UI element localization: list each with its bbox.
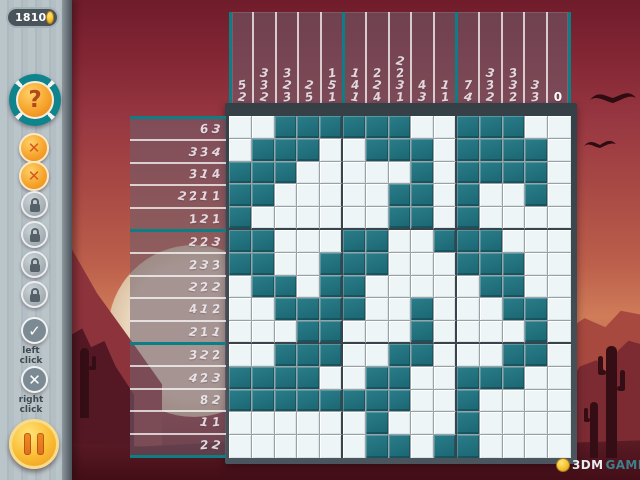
- grid-cell[interactable]: [411, 276, 434, 299]
- grid-cell[interactable]: [457, 253, 480, 276]
- grid-cell[interactable]: [389, 253, 412, 276]
- grid-cell[interactable]: [457, 207, 480, 230]
- grid-cell[interactable]: [389, 298, 412, 321]
- grid-cell[interactable]: [411, 390, 434, 413]
- grid-cell[interactable]: [389, 321, 412, 344]
- grid-cell[interactable]: [457, 116, 480, 139]
- grid-cell[interactable]: [366, 230, 389, 253]
- undo-mistake-button-2[interactable]: ✕: [19, 161, 49, 191]
- grid-cell[interactable]: [275, 412, 298, 435]
- grid-cell[interactable]: [525, 344, 548, 367]
- grid-cell[interactable]: [275, 184, 298, 207]
- left-click-label-line1: left: [0, 346, 62, 356]
- grid-cell[interactable]: [411, 162, 434, 185]
- grid-cell[interactable]: [389, 139, 412, 162]
- grid-cell[interactable]: [480, 390, 503, 413]
- grid-cell[interactable]: [343, 162, 366, 185]
- grid-cell[interactable]: [366, 390, 389, 413]
- pause-button[interactable]: [9, 419, 59, 469]
- grid-cell[interactable]: [457, 367, 480, 390]
- grid-cell[interactable]: [320, 321, 343, 344]
- grid-cell[interactable]: [343, 207, 366, 230]
- grid-cell[interactable]: [389, 230, 412, 253]
- grid-cell[interactable]: [252, 162, 275, 185]
- row-clue: 211: [130, 322, 226, 345]
- grid-cell[interactable]: [320, 116, 343, 139]
- grid-cell[interactable]: [503, 298, 526, 321]
- grid-cell[interactable]: [320, 162, 343, 185]
- grid-cell[interactable]: [548, 139, 571, 162]
- grid-cell[interactable]: [457, 321, 480, 344]
- clue-number: 1: [200, 326, 209, 339]
- grid-cell[interactable]: [525, 139, 548, 162]
- grid-cell[interactable]: [411, 412, 434, 435]
- grid-cell[interactable]: [525, 390, 548, 413]
- grid-cell[interactable]: [275, 116, 298, 139]
- grid-cell[interactable]: [411, 139, 434, 162]
- grid-cell[interactable]: [297, 321, 320, 344]
- grid-cell[interactable]: [275, 253, 298, 276]
- question-icon: ?: [16, 81, 54, 119]
- row-clue: 2211: [130, 186, 226, 208]
- grid-cell[interactable]: [480, 435, 503, 458]
- grid-cell[interactable]: [252, 298, 275, 321]
- grid-cell[interactable]: [457, 298, 480, 321]
- grid-cell[interactable]: [320, 139, 343, 162]
- column-clue: 11: [435, 12, 458, 105]
- grid-cell[interactable]: [434, 207, 457, 230]
- grid-cell[interactable]: [275, 230, 298, 253]
- sidebar-edge: [62, 0, 72, 480]
- fill-mode-indicator[interactable]: ✓: [21, 317, 48, 344]
- grid-cell[interactable]: [252, 253, 275, 276]
- grid-cell[interactable]: [503, 344, 526, 367]
- grid-cell[interactable]: [389, 390, 412, 413]
- row-clue: 82: [130, 390, 226, 412]
- grid-cell[interactable]: [503, 276, 526, 299]
- grid-cell[interactable]: [297, 230, 320, 253]
- clue-number: 1: [188, 212, 198, 225]
- grid-cell[interactable]: [434, 412, 457, 435]
- grid-cell[interactable]: [480, 230, 503, 253]
- grid-cell[interactable]: [252, 276, 275, 299]
- grid-cell[interactable]: [480, 116, 503, 139]
- locked-slot-button-4[interactable]: [21, 281, 48, 308]
- clue-number: 1: [211, 190, 220, 203]
- grid-cell[interactable]: [297, 184, 320, 207]
- watermark-text-game: GAME: [605, 458, 640, 472]
- row-clue: 233: [130, 254, 226, 276]
- grid-cell[interactable]: [297, 298, 320, 321]
- grid-cell[interactable]: [366, 321, 389, 344]
- clue-number: 2: [211, 394, 221, 407]
- grid-cell[interactable]: [297, 139, 320, 162]
- grid-cell[interactable]: [434, 298, 457, 321]
- clue-number: 6: [199, 123, 209, 136]
- hint-button[interactable]: ?: [9, 74, 61, 126]
- grid-cell[interactable]: [229, 253, 252, 276]
- x-icon: ✕: [28, 139, 41, 157]
- grid-cell[interactable]: [434, 184, 457, 207]
- clue-number: 4: [373, 90, 383, 103]
- grid-cell[interactable]: [366, 162, 389, 185]
- grid-cell[interactable]: [525, 253, 548, 276]
- grid-cell[interactable]: [548, 435, 571, 458]
- grid-cell[interactable]: [480, 184, 503, 207]
- grid-cell[interactable]: [434, 230, 457, 253]
- clue-number: 2: [177, 190, 187, 203]
- bird-icon: [583, 136, 617, 156]
- grid-cell[interactable]: [229, 276, 252, 299]
- grid-cell[interactable]: [548, 344, 571, 367]
- grid-cell[interactable]: [343, 435, 366, 458]
- locked-slot-button-2[interactable]: [21, 221, 48, 248]
- left-click-label-line2: click: [0, 356, 62, 366]
- clue-number: 3: [188, 168, 197, 181]
- clue-number: 4: [211, 145, 221, 158]
- grid-cell[interactable]: [229, 321, 252, 344]
- grid-cell[interactable]: [343, 276, 366, 299]
- grid-cell[interactable]: [389, 435, 412, 458]
- grid-cell[interactable]: [297, 435, 320, 458]
- grid-cell[interactable]: [229, 139, 252, 162]
- grid-cell[interactable]: [525, 321, 548, 344]
- grid-cell[interactable]: [503, 184, 526, 207]
- grid-cell[interactable]: [503, 162, 526, 185]
- clue-number: 3: [418, 91, 428, 104]
- clue-number: 3: [211, 123, 221, 136]
- grid-cell[interactable]: [275, 139, 298, 162]
- grid-cell[interactable]: [480, 253, 503, 276]
- column-clue: 332: [480, 12, 502, 105]
- row-clue: 22: [130, 435, 226, 455]
- column-clue: 2231: [390, 12, 412, 105]
- grid-cell[interactable]: [389, 207, 412, 230]
- grid-cell[interactable]: [343, 139, 366, 162]
- grid-cell[interactable]: [503, 390, 526, 413]
- grid-cell[interactable]: [320, 367, 343, 390]
- grid-cell[interactable]: [366, 412, 389, 435]
- grid-cell[interactable]: [503, 139, 526, 162]
- lock-icon: [29, 258, 41, 272]
- grid-cell[interactable]: [320, 253, 343, 276]
- right-click-label-line1: right: [0, 395, 62, 405]
- column-clue: 332: [254, 12, 276, 105]
- grid-cell[interactable]: [411, 298, 434, 321]
- grid-cell[interactable]: [389, 367, 412, 390]
- cactus-icon: [590, 402, 598, 458]
- grid-cell[interactable]: [343, 184, 366, 207]
- grid-cell[interactable]: [457, 435, 480, 458]
- grid-cell[interactable]: [480, 321, 503, 344]
- watermark-logo-icon: [556, 458, 570, 472]
- grid-cell[interactable]: [320, 230, 343, 253]
- grid-cell[interactable]: [434, 390, 457, 413]
- grid-cell[interactable]: [229, 390, 252, 413]
- grid-cell[interactable]: [320, 184, 343, 207]
- coin-count-value: 1810: [15, 11, 46, 24]
- grid-cell[interactable]: [480, 367, 503, 390]
- grid-cell[interactable]: [275, 321, 298, 344]
- grid-cell[interactable]: [297, 367, 320, 390]
- grid-cell[interactable]: [411, 253, 434, 276]
- grid-cell[interactable]: [343, 253, 366, 276]
- grid-cell[interactable]: [366, 253, 389, 276]
- grid-cell[interactable]: [297, 116, 320, 139]
- row-clue: 223: [130, 232, 226, 254]
- grid-cell[interactable]: [457, 139, 480, 162]
- grid-cell[interactable]: [252, 116, 275, 139]
- grid-cell[interactable]: [548, 184, 571, 207]
- clue-number: 4: [463, 90, 473, 103]
- grid-cell[interactable]: [229, 207, 252, 230]
- grid-cell[interactable]: [503, 253, 526, 276]
- clue-number: 8: [199, 393, 209, 406]
- grid-cell[interactable]: [503, 412, 526, 435]
- grid-cell[interactable]: [297, 162, 320, 185]
- grid-cell[interactable]: [525, 298, 548, 321]
- grid-cell[interactable]: [503, 321, 526, 344]
- grid-cell[interactable]: [434, 276, 457, 299]
- grid-cell[interactable]: [525, 162, 548, 185]
- grid-cell[interactable]: [548, 367, 571, 390]
- grid-cell[interactable]: [389, 276, 412, 299]
- grid-cell[interactable]: [434, 162, 457, 185]
- grid-cell[interactable]: [252, 207, 275, 230]
- grid-cell[interactable]: [457, 276, 480, 299]
- grid-cell[interactable]: [503, 116, 526, 139]
- grid-cell[interactable]: [366, 184, 389, 207]
- grid-cell[interactable]: [525, 276, 548, 299]
- locked-slot-button-1[interactable]: [21, 191, 48, 218]
- x-icon: ✕: [28, 371, 41, 389]
- grid-cell[interactable]: [411, 344, 434, 367]
- grid-cell[interactable]: [480, 412, 503, 435]
- grid-cell[interactable]: [389, 162, 412, 185]
- grid-cell[interactable]: [525, 116, 548, 139]
- clue-number: 1: [350, 90, 360, 103]
- right-click-label-line2: click: [0, 405, 62, 415]
- grid-cell[interactable]: [320, 207, 343, 230]
- grid-cell[interactable]: [480, 344, 503, 367]
- column-clue: 141: [345, 12, 367, 105]
- column-clue: 323: [277, 12, 299, 105]
- grid-cell[interactable]: [389, 116, 412, 139]
- grid-cell[interactable]: [229, 412, 252, 435]
- grid-cell[interactable]: [434, 344, 457, 367]
- clue-number: 1: [440, 91, 449, 104]
- grid-cell[interactable]: [411, 116, 434, 139]
- grid-cell[interactable]: [320, 344, 343, 367]
- grid-cell[interactable]: [548, 116, 571, 139]
- clue-number: 2: [259, 90, 269, 103]
- watermark-text-3dm: 3DM: [572, 458, 603, 472]
- grid-cell[interactable]: [343, 344, 366, 367]
- grid-cell[interactable]: [252, 230, 275, 253]
- grid-cell[interactable]: [434, 367, 457, 390]
- grid-cell[interactable]: [548, 276, 571, 299]
- grid-cell[interactable]: [297, 276, 320, 299]
- grid-cell[interactable]: [343, 321, 366, 344]
- grid-cell[interactable]: [366, 367, 389, 390]
- grid-cell[interactable]: [366, 207, 389, 230]
- row-clue: 412: [130, 299, 226, 321]
- grid-cell[interactable]: [548, 412, 571, 435]
- locked-slot-button-3[interactable]: [21, 251, 48, 278]
- grid-cell[interactable]: [411, 435, 434, 458]
- grid-cell[interactable]: [343, 367, 366, 390]
- grid-cell[interactable]: [548, 162, 571, 185]
- grid-cell[interactable]: [480, 207, 503, 230]
- clue-number: 2: [486, 91, 496, 104]
- grid-cell[interactable]: [480, 298, 503, 321]
- grid-cell[interactable]: [343, 298, 366, 321]
- row-clue: 121: [130, 209, 226, 232]
- grid-cell[interactable]: [297, 412, 320, 435]
- grid-cell[interactable]: [275, 162, 298, 185]
- grid-cell[interactable]: [252, 412, 275, 435]
- grid-cell[interactable]: [434, 116, 457, 139]
- grid-cell[interactable]: [548, 298, 571, 321]
- grid-cell[interactable]: [411, 207, 434, 230]
- grid-cell[interactable]: [525, 412, 548, 435]
- grid-cell[interactable]: [366, 344, 389, 367]
- grid-cell[interactable]: [434, 253, 457, 276]
- grid-cell[interactable]: [252, 390, 275, 413]
- grid-cell[interactable]: [275, 207, 298, 230]
- grid-cell[interactable]: [503, 435, 526, 458]
- grid-cell[interactable]: [389, 184, 412, 207]
- clue-number: 3: [282, 90, 292, 103]
- clue-number: 2: [211, 349, 221, 362]
- grid-cell[interactable]: [457, 390, 480, 413]
- grid-cell[interactable]: [434, 321, 457, 344]
- grid-cell[interactable]: [389, 412, 412, 435]
- grid-cell[interactable]: [229, 116, 252, 139]
- grid-cell[interactable]: [434, 435, 457, 458]
- clue-number: 2: [211, 303, 220, 316]
- grid-cell[interactable]: [548, 207, 571, 230]
- clue-number: 4: [188, 371, 198, 384]
- grid-cell[interactable]: [434, 139, 457, 162]
- grid-cell[interactable]: [457, 412, 480, 435]
- grid-cell[interactable]: [411, 230, 434, 253]
- grid-cell[interactable]: [503, 230, 526, 253]
- clue-number: 1: [211, 325, 221, 338]
- grid-cell[interactable]: [229, 344, 252, 367]
- grid-cell[interactable]: [320, 276, 343, 299]
- clue-number: 1: [200, 303, 210, 316]
- grid-cell[interactable]: [457, 344, 480, 367]
- grid-cell[interactable]: [525, 435, 548, 458]
- grid-cell[interactable]: [229, 230, 252, 253]
- undo-mistake-button-1[interactable]: ✕: [19, 133, 49, 163]
- grid-cell[interactable]: [297, 253, 320, 276]
- grid-cell[interactable]: [343, 412, 366, 435]
- grid-cell[interactable]: [343, 390, 366, 413]
- grid-cell[interactable]: [252, 367, 275, 390]
- grid-cell[interactable]: [297, 207, 320, 230]
- grid-cell[interactable]: [229, 435, 252, 458]
- grid-cell[interactable]: [297, 344, 320, 367]
- grid-cell[interactable]: [548, 390, 571, 413]
- grid-cell[interactable]: [548, 230, 571, 253]
- clue-number: 0: [554, 91, 562, 103]
- grid-cell[interactable]: [297, 390, 320, 413]
- watermark: 3DM GAME: [556, 458, 640, 472]
- clue-number: 2: [188, 258, 197, 271]
- grid-cell[interactable]: [320, 435, 343, 458]
- grid-cell[interactable]: [275, 276, 298, 299]
- grid-cell[interactable]: [525, 230, 548, 253]
- grid-cell[interactable]: [275, 298, 298, 321]
- grid-cell[interactable]: [343, 230, 366, 253]
- x-icon: ✕: [28, 167, 41, 185]
- grid-cell[interactable]: [229, 298, 252, 321]
- grid-cell[interactable]: [252, 344, 275, 367]
- grid-cell[interactable]: [320, 412, 343, 435]
- clue-number: 2: [508, 91, 517, 104]
- grid-cell[interactable]: [480, 162, 503, 185]
- clue-number: 1: [327, 91, 336, 104]
- grid-cell[interactable]: [275, 344, 298, 367]
- grid-cell[interactable]: [457, 162, 480, 185]
- grid-cell[interactable]: [252, 184, 275, 207]
- clue-number: 1: [395, 91, 404, 104]
- grid-cell[interactable]: [389, 344, 412, 367]
- grid-cell[interactable]: [252, 321, 275, 344]
- grid-cell[interactable]: [252, 435, 275, 458]
- grid-cell[interactable]: [252, 139, 275, 162]
- grid-cell[interactable]: [525, 367, 548, 390]
- column-clue: 332: [503, 12, 525, 105]
- grid-cell[interactable]: [229, 162, 252, 185]
- grid-cell[interactable]: [275, 367, 298, 390]
- grid-cell[interactable]: [525, 207, 548, 230]
- grid-cell[interactable]: [229, 184, 252, 207]
- grid-cell[interactable]: [275, 390, 298, 413]
- grid-cell[interactable]: [525, 184, 548, 207]
- clue-number: 2: [188, 280, 198, 293]
- grid-cell[interactable]: [320, 298, 343, 321]
- grid-cell[interactable]: [320, 390, 343, 413]
- grid-cell[interactable]: [366, 435, 389, 458]
- grid-cell[interactable]: [548, 253, 571, 276]
- grid-cell[interactable]: [366, 139, 389, 162]
- grid-cell[interactable]: [343, 116, 366, 139]
- cross-mode-indicator[interactable]: ✕: [21, 366, 48, 393]
- grid-cell[interactable]: [411, 367, 434, 390]
- grid-cell[interactable]: [480, 276, 503, 299]
- grid-cell[interactable]: [457, 184, 480, 207]
- lock-icon: [29, 198, 41, 212]
- grid-cell[interactable]: [366, 298, 389, 321]
- grid-cell[interactable]: [411, 321, 434, 344]
- grid-cell[interactable]: [275, 435, 298, 458]
- pause-icon: [37, 433, 44, 455]
- grid-cell[interactable]: [548, 321, 571, 344]
- grid-cell[interactable]: [503, 207, 526, 230]
- grid-cell[interactable]: [229, 367, 252, 390]
- grid-cell[interactable]: [503, 367, 526, 390]
- clue-number: 2: [188, 190, 198, 203]
- grid-cell[interactable]: [480, 139, 503, 162]
- grid-cell[interactable]: [411, 184, 434, 207]
- grid-cell[interactable]: [366, 116, 389, 139]
- grid-cell[interactable]: [366, 276, 389, 299]
- grid-cell[interactable]: [457, 230, 480, 253]
- clue-number: 2: [199, 371, 209, 384]
